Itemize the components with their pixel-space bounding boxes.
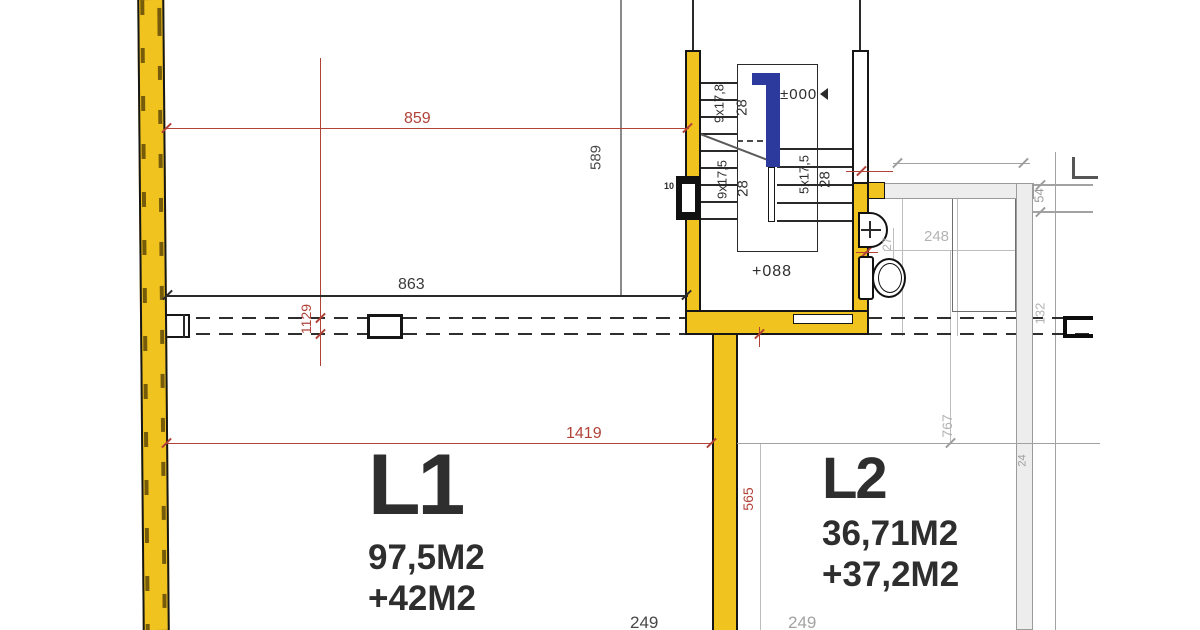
red-tick-line	[846, 171, 893, 172]
unit-l1-block: L1 97,5M2 +42M2	[368, 442, 485, 616]
grid-line-bottom	[760, 444, 761, 630]
unit-l1-label: L1	[368, 442, 485, 528]
dim-27: 27	[881, 204, 893, 284]
dim-859-line	[166, 128, 689, 129]
unit-l2-bonus: +37,2M2	[822, 557, 959, 592]
dim-863: 863	[398, 277, 425, 293]
stair-label-flight-mid: 9x17,5	[716, 140, 729, 220]
sink-cross	[869, 221, 871, 238]
dim-589: 589	[589, 118, 604, 198]
dim-249-right: 249	[788, 614, 816, 630]
dim-132: 132	[1034, 274, 1047, 354]
stair-label-flight-top: 9x17,8	[713, 64, 726, 144]
grid-line-vertical	[620, 0, 622, 296]
level-marker-icon	[820, 88, 828, 100]
room-outline	[952, 198, 1016, 312]
wall-stub-yellow	[868, 182, 885, 199]
stair-label-tread-low: 28	[818, 140, 833, 220]
level-ground: ±000	[780, 87, 817, 102]
wall-right	[1016, 183, 1033, 630]
dim-1419-line-gray	[737, 443, 1100, 444]
dashed-wall-above	[150, 317, 686, 319]
landing-step	[793, 314, 853, 324]
window-tag: 10	[664, 181, 672, 191]
stair-label-flight-low: 5x17,5	[798, 135, 811, 215]
dim-248: 248	[924, 229, 949, 244]
dim-249-left: 249	[630, 614, 658, 630]
wall-hatch	[157, 0, 166, 630]
stair-label-tread-top: 28	[735, 68, 750, 148]
unit-l1-bonus: +42M2	[368, 581, 485, 616]
unit-l2-label: L2	[822, 450, 959, 508]
handrail-blue	[766, 73, 780, 167]
window-glass	[682, 184, 695, 212]
dashed-wall-above	[150, 333, 686, 335]
dim-24: 24	[1018, 421, 1029, 501]
wall-hatch	[140, 0, 149, 630]
unit-l2-block: L2 36,71M2 +37,2M2	[822, 450, 959, 592]
dim-1129: 1129	[299, 279, 313, 359]
dim-565: 565	[741, 459, 755, 539]
dim-863-line	[166, 295, 688, 297]
dim-1129-line	[320, 58, 321, 366]
dim-1419: 1419	[566, 426, 602, 442]
neighbor-wall-bracket	[1063, 316, 1093, 338]
stair-label-tread-mid: 28	[736, 149, 751, 229]
unit-l2-area: 36,71M2	[822, 516, 959, 551]
floor-plan: 10 9x17,8 28 9x17,5 28 5x17,5 28 ±000 +0…	[0, 0, 1200, 630]
wall-left	[137, 0, 170, 630]
stair-axis-line-left	[692, 0, 694, 52]
beam-box-divider	[183, 314, 185, 338]
unit-l1-area: 97,5M2	[368, 540, 485, 575]
grid-line-right	[1055, 152, 1056, 630]
wall-below-stair	[712, 333, 738, 630]
wall-bath-top	[884, 183, 1034, 199]
handrail-lower	[768, 167, 775, 222]
column	[367, 314, 403, 339]
stair-wall-right-upper	[852, 50, 869, 184]
sink-cross	[861, 229, 881, 231]
level-landing: +088	[752, 264, 792, 280]
dim-line-top-right	[893, 163, 1030, 164]
dim-565-arrow-line	[759, 327, 760, 347]
neighbor-wall-mark	[1072, 176, 1098, 179]
stair-axis-line-right	[859, 0, 861, 52]
dim-859: 859	[404, 111, 431, 127]
dim-54: 54	[1033, 156, 1046, 236]
